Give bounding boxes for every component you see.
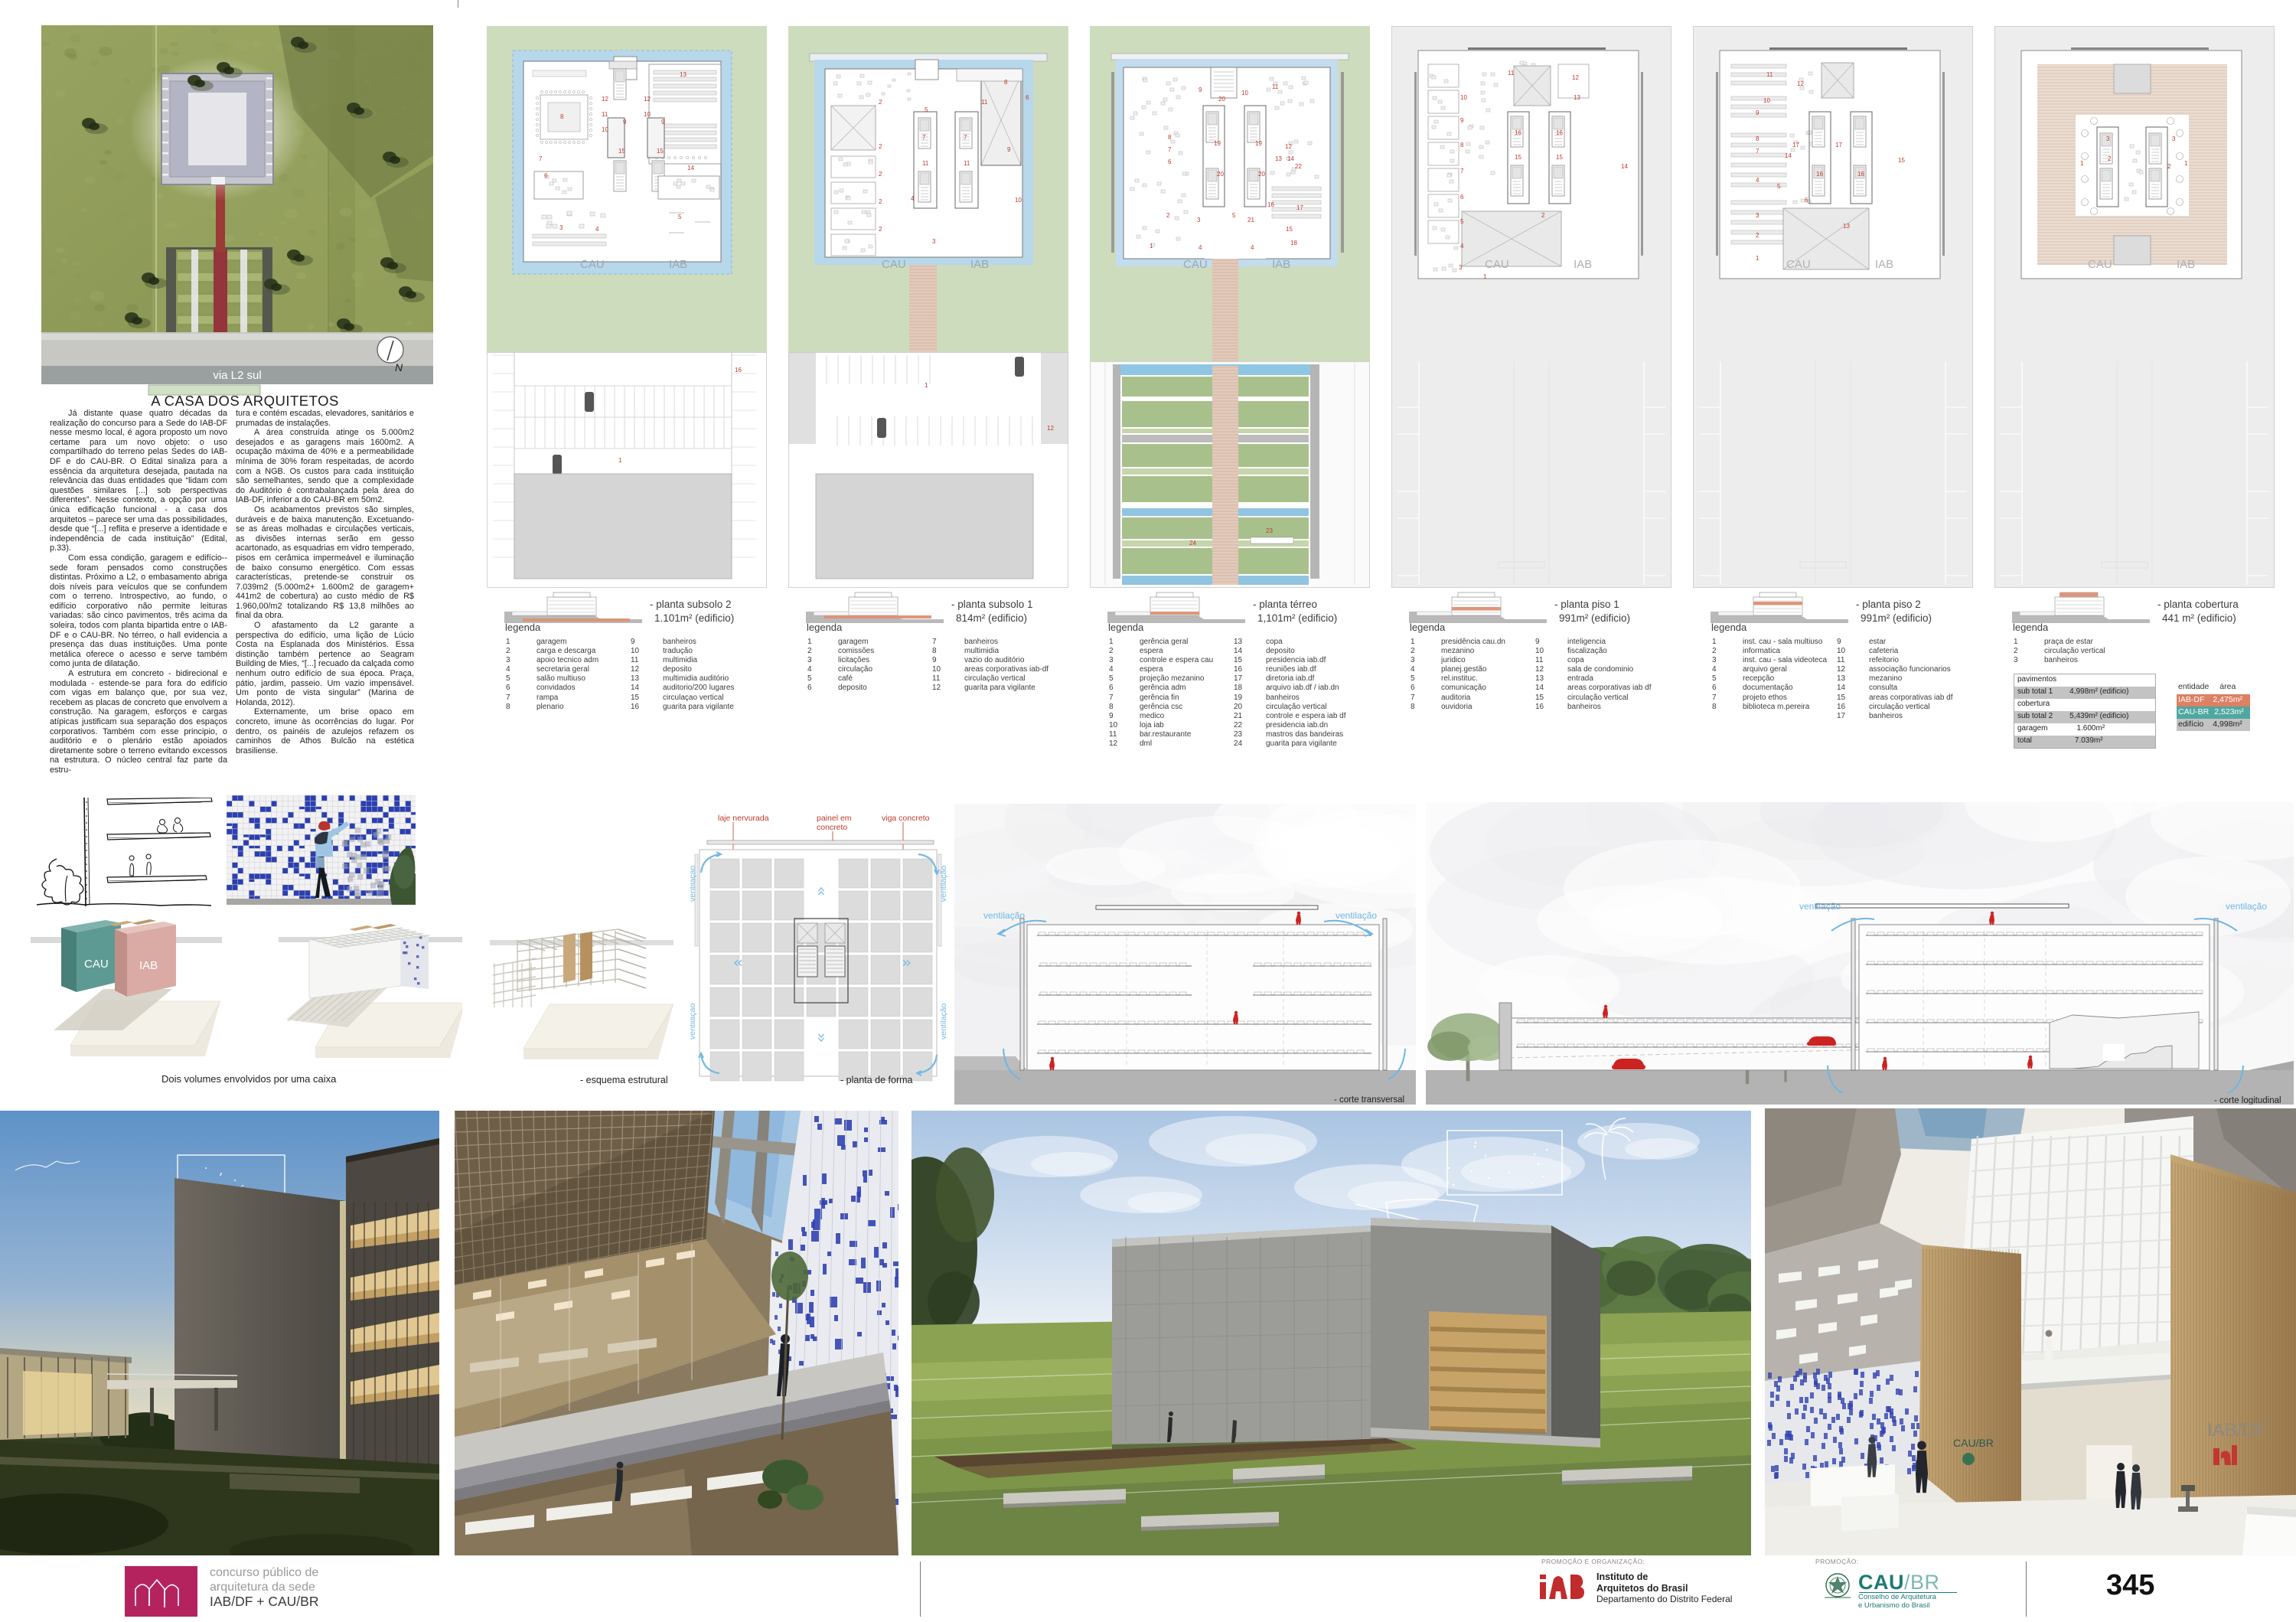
svg-text:CAU: CAU	[84, 958, 109, 971]
svg-text:16: 16	[1857, 171, 1864, 178]
svg-text:11: 11	[1508, 70, 1515, 77]
svg-text:10: 10	[602, 126, 608, 133]
svg-text:7: 7	[539, 155, 543, 162]
svg-text:9: 9	[623, 119, 627, 126]
svg-text:via L2 sul: via L2 sul	[213, 369, 261, 382]
svg-text:2: 2	[1166, 212, 1170, 219]
svg-text:14: 14	[687, 165, 694, 171]
svg-text:14: 14	[1621, 163, 1628, 170]
svg-text:10: 10	[1763, 97, 1770, 104]
svg-text:IAB: IAB	[1574, 258, 1592, 271]
svg-text:3: 3	[932, 238, 936, 245]
svg-text:- corte transversal: - corte transversal	[1334, 1095, 1404, 1105]
svg-text:1: 1	[2080, 160, 2084, 167]
svg-text:7: 7	[1168, 146, 1172, 153]
svg-text:7: 7	[922, 134, 926, 141]
svg-text:IAB: IAB	[1875, 258, 1893, 271]
svg-text:7: 7	[964, 134, 967, 141]
svg-text:8: 8	[1460, 142, 1464, 148]
svg-text:6: 6	[1168, 158, 1172, 165]
svg-text:- planta de forma: - planta de forma	[840, 1075, 913, 1085]
svg-text:14: 14	[1287, 155, 1294, 162]
svg-text:3: 3	[559, 224, 563, 231]
svg-text:5: 5	[1232, 212, 1236, 219]
svg-text:12: 12	[644, 96, 651, 103]
svg-text:ventilação: ventilação	[939, 866, 948, 902]
svg-text:2: 2	[2108, 155, 2112, 162]
svg-text:15: 15	[618, 148, 625, 155]
svg-text:15: 15	[657, 148, 664, 155]
svg-text:3: 3	[2106, 135, 2110, 142]
svg-text:11: 11	[1766, 71, 1773, 78]
svg-text:2: 2	[879, 226, 882, 233]
svg-text:10: 10	[1460, 94, 1467, 101]
svg-text:viga concreto: viga concreto	[882, 814, 930, 823]
svg-text:4: 4	[1251, 244, 1254, 251]
svg-text:1: 1	[618, 457, 622, 464]
svg-text:ventilação: ventilação	[1799, 901, 1841, 912]
svg-text:12: 12	[1797, 80, 1804, 87]
svg-text:- corte logitudinal: - corte logitudinal	[2214, 1096, 2281, 1105]
svg-text:3: 3	[1459, 264, 1463, 271]
svg-text:13: 13	[1275, 155, 1282, 162]
svg-text:ventilação: ventilação	[2226, 901, 2267, 912]
svg-text:5: 5	[678, 214, 682, 220]
svg-text:17: 17	[1792, 142, 1799, 148]
svg-text:15: 15	[1286, 226, 1293, 233]
svg-text:3: 3	[1197, 217, 1201, 224]
svg-text:12: 12	[1047, 425, 1054, 432]
svg-text:20: 20	[1258, 171, 1265, 178]
svg-text:19: 19	[1255, 140, 1262, 147]
svg-text:CAU: CAU	[1183, 258, 1208, 271]
svg-text:15: 15	[1515, 154, 1521, 161]
svg-text:4: 4	[1756, 177, 1760, 184]
svg-text:painel em: painel em	[817, 814, 852, 823]
svg-text:6: 6	[544, 172, 548, 179]
svg-text:16: 16	[1816, 171, 1823, 178]
svg-text:2: 2	[1541, 212, 1545, 219]
svg-text:11: 11	[1272, 83, 1279, 90]
svg-text:CAU: CAU	[882, 258, 906, 271]
svg-text:ventilação: ventilação	[983, 910, 1025, 921]
svg-text:9: 9	[661, 119, 665, 126]
svg-text:5: 5	[925, 106, 928, 113]
svg-text:12: 12	[1572, 74, 1579, 81]
svg-text:IAB: IAB	[1272, 258, 1290, 271]
svg-text:15: 15	[1898, 157, 1905, 164]
svg-text:4: 4	[595, 226, 599, 233]
svg-text:3: 3	[2172, 135, 2176, 142]
svg-text:CAU: CAU	[580, 258, 605, 271]
svg-text:IAB: IAB	[139, 959, 158, 972]
svg-text:9: 9	[1460, 117, 1464, 124]
svg-text:4: 4	[1460, 243, 1464, 250]
svg-text:18: 18	[1290, 240, 1297, 246]
svg-text:1: 1	[925, 382, 928, 389]
svg-text:8: 8	[1004, 79, 1008, 86]
svg-text:CAU: CAU	[1786, 258, 1811, 271]
svg-text:11: 11	[922, 160, 929, 167]
svg-text:6: 6	[1026, 94, 1029, 101]
svg-text:16: 16	[1515, 129, 1521, 136]
svg-text:11: 11	[602, 111, 608, 118]
svg-text:12: 12	[602, 96, 608, 103]
svg-text:concreto: concreto	[817, 823, 847, 832]
svg-text:2: 2	[879, 99, 882, 106]
svg-text:1: 1	[1483, 273, 1487, 280]
svg-text:4: 4	[911, 195, 915, 202]
svg-text:15: 15	[1556, 154, 1563, 161]
svg-text:11: 11	[964, 160, 970, 167]
svg-text:10: 10	[1241, 90, 1248, 96]
svg-text:1: 1	[2184, 160, 2188, 167]
svg-text:10: 10	[644, 111, 651, 118]
svg-text:laje nervurada: laje nervurada	[718, 814, 769, 823]
svg-text:5: 5	[1460, 218, 1464, 225]
svg-text:N: N	[395, 361, 403, 374]
svg-text:3: 3	[1756, 212, 1760, 219]
svg-text:12: 12	[1285, 143, 1292, 150]
svg-text:13: 13	[1843, 223, 1850, 230]
svg-text:2: 2	[879, 143, 882, 150]
svg-text:8: 8	[1168, 134, 1172, 141]
svg-text:IAB: IAB	[669, 258, 687, 271]
svg-text:IAB/DF: IAB/DF	[2207, 1420, 2266, 1441]
svg-text:13: 13	[1574, 94, 1580, 101]
svg-text:9: 9	[1007, 146, 1011, 153]
svg-text:1: 1	[1756, 255, 1760, 262]
svg-text:9: 9	[1756, 109, 1760, 116]
svg-text:20: 20	[1218, 96, 1225, 103]
svg-text:14: 14	[1785, 152, 1792, 159]
svg-text:IAB: IAB	[970, 258, 989, 271]
svg-text:2: 2	[879, 198, 882, 205]
svg-text:19: 19	[1214, 140, 1221, 147]
svg-text:23: 23	[1266, 527, 1273, 534]
svg-text:2: 2	[879, 171, 882, 178]
svg-text:6: 6	[1460, 194, 1464, 201]
svg-text:20: 20	[1217, 171, 1224, 178]
svg-text:17: 17	[1296, 204, 1303, 211]
svg-text:11: 11	[981, 99, 988, 106]
svg-text:5: 5	[1777, 183, 1781, 190]
svg-text:2: 2	[1756, 232, 1760, 239]
svg-text:8: 8	[1756, 135, 1760, 142]
svg-text:21: 21	[1247, 217, 1254, 224]
svg-text:CAU/BR: CAU/BR	[1953, 1437, 1994, 1449]
svg-text:16: 16	[735, 367, 742, 374]
svg-text:8: 8	[560, 113, 564, 120]
svg-text:24: 24	[1189, 540, 1196, 547]
svg-text:ventilação: ventilação	[939, 1004, 948, 1039]
svg-text:2: 2	[2167, 163, 2171, 170]
svg-text:22: 22	[1295, 163, 1302, 170]
svg-text:CAU: CAU	[1485, 258, 1509, 271]
svg-text:13: 13	[680, 71, 687, 78]
svg-text:9: 9	[1199, 86, 1202, 93]
svg-text:10: 10	[1015, 197, 1022, 204]
svg-text:7: 7	[1460, 168, 1464, 175]
svg-text:16: 16	[1267, 201, 1274, 208]
svg-text:7: 7	[1756, 148, 1760, 155]
svg-text:4: 4	[1199, 244, 1202, 251]
svg-text:ventilação: ventilação	[690, 866, 697, 902]
svg-text:ventilação: ventilação	[1336, 910, 1377, 921]
svg-text:ventilação: ventilação	[690, 1004, 697, 1039]
svg-text:6: 6	[1805, 197, 1808, 204]
svg-text:16: 16	[1556, 129, 1563, 136]
svg-text:CAU: CAU	[2088, 258, 2112, 271]
svg-text:17: 17	[1835, 142, 1842, 148]
svg-text:IAB: IAB	[2177, 258, 2195, 271]
svg-text:1: 1	[1150, 243, 1153, 250]
